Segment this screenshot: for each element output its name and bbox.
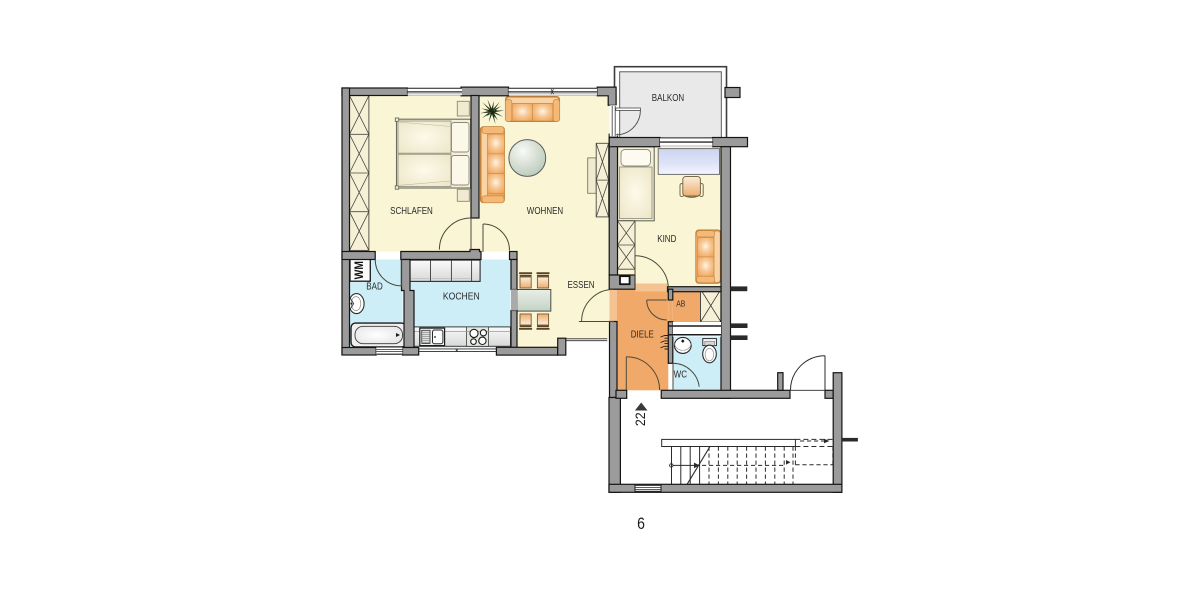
svg-text:WOHNEN: WOHNEN	[527, 205, 563, 216]
svg-text:WM: WM	[353, 261, 366, 279]
svg-text:AB: AB	[676, 299, 685, 309]
svg-text:SCHLAFEN: SCHLAFEN	[390, 205, 433, 216]
svg-text:22: 22	[632, 412, 648, 426]
svg-text:BAD: BAD	[366, 281, 383, 292]
svg-text:6: 6	[637, 515, 645, 533]
svg-text:KOCHEN: KOCHEN	[443, 291, 480, 302]
svg-text:ESSEN: ESSEN	[567, 279, 594, 290]
svg-text:KIND: KIND	[657, 233, 677, 244]
svg-text:WC: WC	[674, 369, 688, 380]
svg-text:BALKON: BALKON	[652, 92, 684, 103]
svg-text:DIELE: DIELE	[631, 329, 654, 340]
